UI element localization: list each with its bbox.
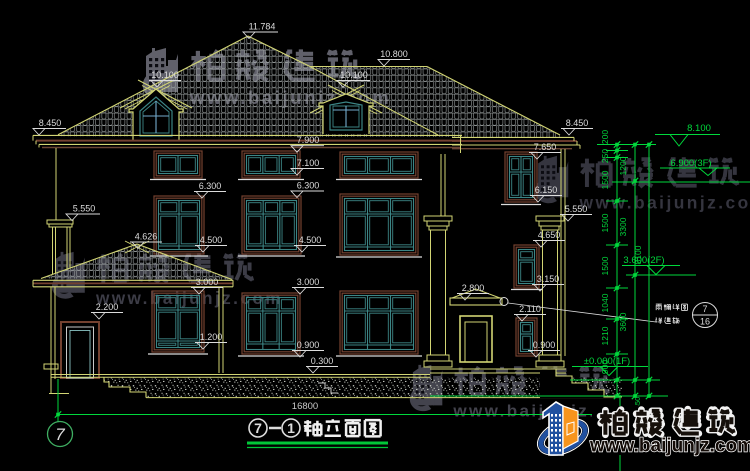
svg-text:1200: 1200 (618, 156, 628, 175)
svg-text:4.626: 4.626 (135, 232, 158, 242)
svg-text:3300: 3300 (618, 217, 628, 236)
svg-text:1500: 1500 (600, 170, 610, 189)
svg-text:1.200: 1.200 (200, 332, 223, 342)
svg-text:1040: 1040 (600, 293, 610, 312)
svg-text:7.650: 7.650 (534, 142, 557, 152)
svg-text:6.300: 6.300 (297, 181, 320, 191)
svg-text:4.500: 4.500 (200, 235, 223, 245)
svg-text:0.300: 0.300 (311, 356, 334, 366)
svg-text:6.900(3F): 6.900(3F) (670, 158, 711, 169)
svg-text:7: 7 (55, 425, 65, 444)
svg-text:5.550: 5.550 (73, 204, 96, 214)
svg-text:1500: 1500 (600, 256, 610, 275)
svg-text:4.500: 4.500 (299, 235, 322, 245)
svg-text:7: 7 (702, 304, 707, 314)
svg-text:16800: 16800 (292, 401, 318, 412)
svg-text:10.100: 10.100 (340, 70, 368, 80)
svg-text:200: 200 (600, 130, 610, 144)
svg-text:7.100: 7.100 (297, 158, 320, 168)
svg-text:3.150: 3.150 (537, 274, 560, 284)
svg-text:3.600(2F): 3.600(2F) (623, 255, 664, 266)
svg-text:0.900: 0.900 (533, 340, 556, 350)
svg-text:8.100: 8.100 (687, 123, 711, 134)
svg-text:0.900: 0.900 (297, 340, 320, 350)
svg-text:6.300: 6.300 (199, 181, 222, 191)
svg-text:8.450: 8.450 (39, 118, 62, 128)
svg-text:250: 250 (600, 149, 610, 163)
svg-text:16: 16 (700, 317, 710, 327)
svg-text:2.200: 2.200 (96, 302, 119, 312)
svg-text:10.800: 10.800 (380, 49, 408, 59)
svg-text:3.000: 3.000 (297, 277, 320, 287)
svg-text:2.800: 2.800 (462, 283, 485, 293)
svg-text:1500: 1500 (600, 213, 610, 232)
svg-text:5.550: 5.550 (565, 204, 588, 214)
svg-text:11.784: 11.784 (249, 22, 276, 32)
svg-text:10.100: 10.100 (151, 70, 179, 80)
svg-text:4.650: 4.650 (538, 230, 561, 240)
svg-text:6.150: 6.150 (535, 185, 558, 195)
svg-text:7: 7 (254, 420, 262, 436)
svg-text:2.110: 2.110 (519, 304, 541, 314)
svg-text:3600: 3600 (618, 312, 628, 331)
svg-text:1: 1 (287, 420, 295, 436)
svg-text:1210: 1210 (600, 326, 610, 345)
svg-text:7.900: 7.900 (297, 135, 320, 145)
svg-text:www.baijunjz.com: www.baijunjz.com (589, 436, 750, 457)
svg-text:8.450: 8.450 (566, 118, 589, 128)
svg-text:±0.000(1F): ±0.000(1F) (584, 356, 630, 367)
svg-text:3.000: 3.000 (196, 277, 219, 287)
